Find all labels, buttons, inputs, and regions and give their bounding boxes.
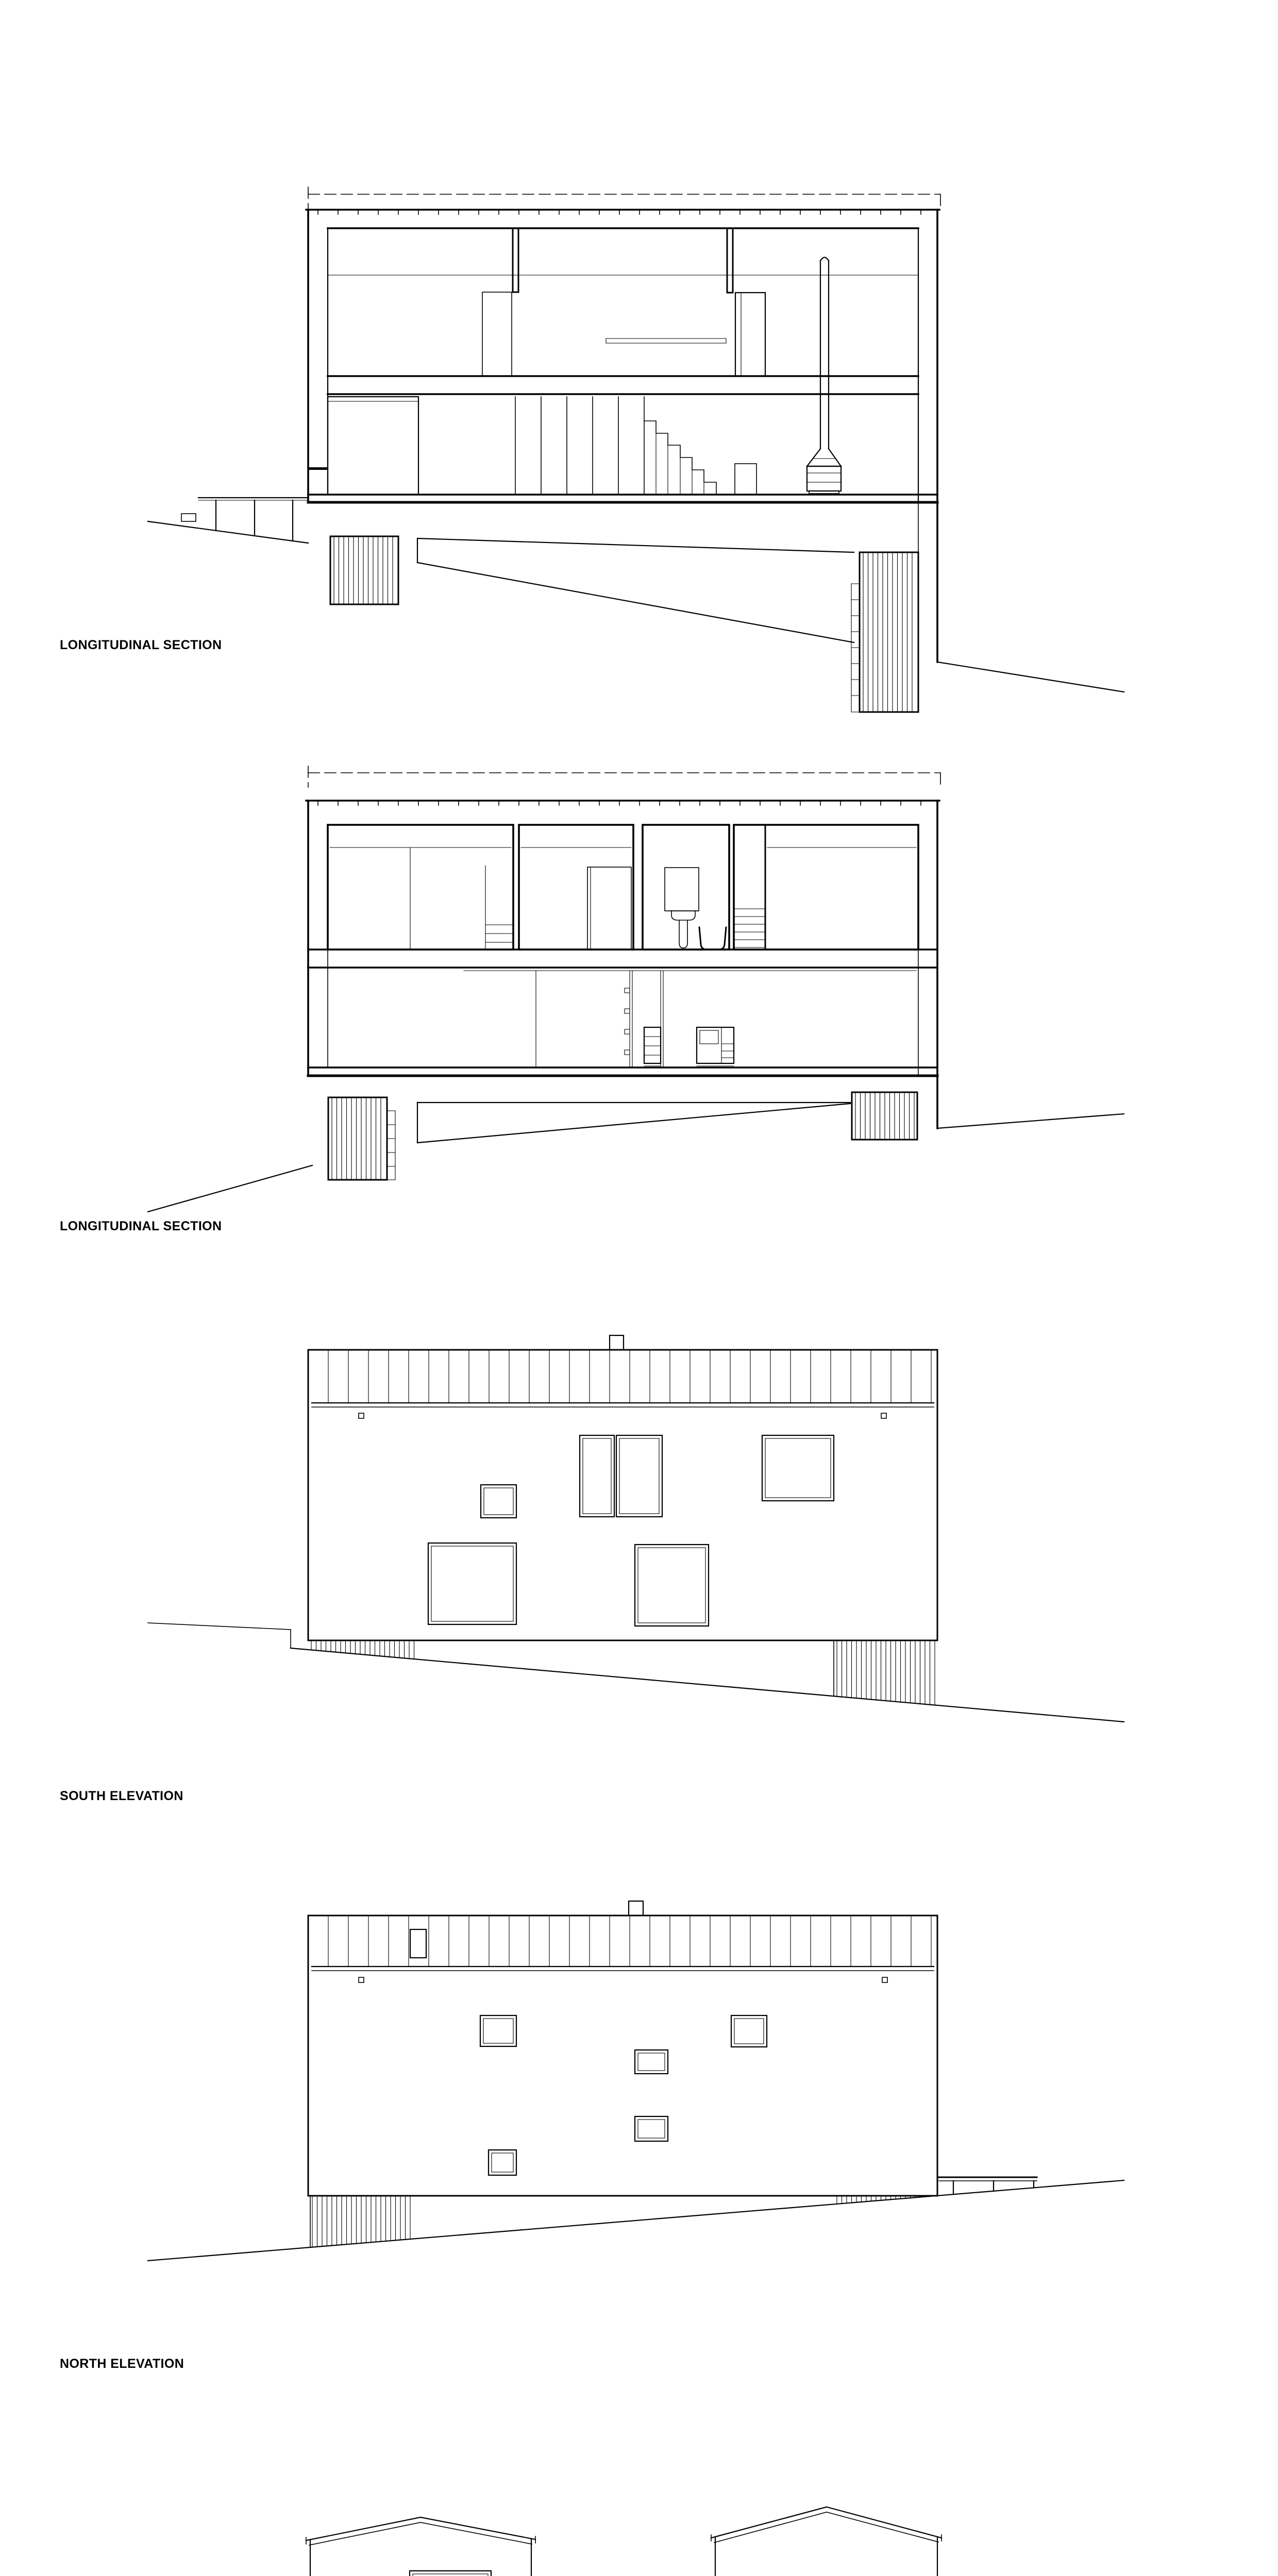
longitudinal-section-2-drawing — [148, 766, 1124, 1212]
basement-siding-right — [837, 1640, 935, 1705]
label-north-elevation: NORTH ELEVATION — [60, 2357, 184, 2371]
west-elevation-drawing — [258, 2517, 581, 2576]
foundation-hatch-left — [332, 1097, 381, 1180]
south-elevation-drawing — [148, 1335, 1124, 1722]
architectural-drawings — [0, 0, 1278, 2576]
label-longitudinal-section-1: LONGITUDINAL SECTION — [60, 638, 222, 653]
stair-balustrade — [515, 397, 644, 495]
retaining-hatch-left — [311, 1640, 414, 1659]
basement-siding-left — [312, 2196, 410, 2247]
north-elevation-drawing — [148, 1901, 1124, 2261]
label-south-elevation: SOUTH ELEVATION — [60, 1789, 183, 1804]
foundation-hatch-right — [855, 1092, 914, 1140]
label-longitudinal-section-2: LONGITUDINAL SECTION — [60, 1219, 222, 1234]
drawing-sheet: LONGITUDINAL SECTION LONGITUDINAL SECTIO… — [0, 0, 1278, 2576]
foundation-hatch-right — [863, 552, 912, 712]
longitudinal-section-1-drawing — [148, 187, 1124, 712]
foundation-hatch-left — [334, 536, 393, 604]
roof-seams — [328, 1350, 931, 1403]
east-elevation-drawing — [664, 2507, 974, 2576]
